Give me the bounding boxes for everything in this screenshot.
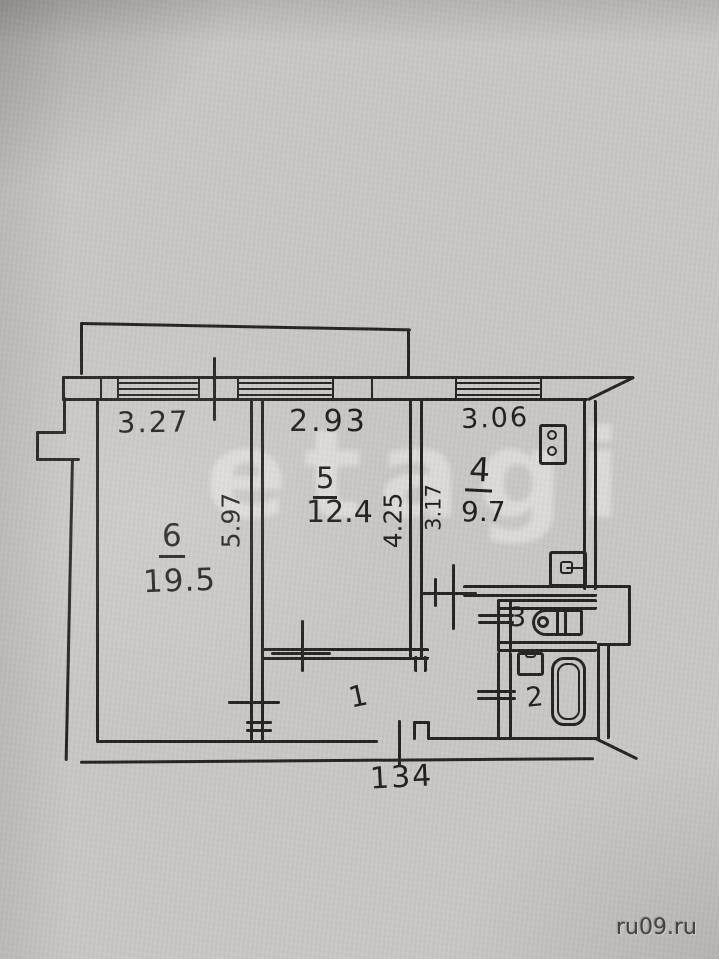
- wall-niche-left: [36, 431, 39, 461]
- wall-niche-top: [36, 431, 66, 434]
- kitchen-door-tick-1: [452, 564, 455, 630]
- window-hatch-line: [117, 388, 198, 390]
- kitchen-sink-line: [566, 567, 584, 569]
- entrance-jamb-top: [413, 721, 430, 724]
- left-wall-outer: [65, 458, 74, 761]
- kitchen-door-tick-3: [421, 592, 477, 595]
- bathroom-west-wall: [497, 652, 512, 739]
- tap-icon: [525, 649, 536, 658]
- bathroom-door-tick-2: [477, 697, 516, 700]
- room-kitchen-area: 9.7: [461, 498, 506, 526]
- east-wall-lower: [597, 645, 610, 739]
- bottom-wall-inner-right: [428, 737, 599, 740]
- balcony-left-line: [80, 324, 83, 375]
- window-wall-bottom-line: [62, 398, 588, 401]
- dim-depth-left: 5.97: [219, 490, 244, 552]
- window-hatch-line: [455, 394, 540, 396]
- dim-entrance: 134: [369, 761, 434, 794]
- balcony-top-line: [80, 322, 411, 331]
- bedroom-door-tick-v: [301, 620, 304, 672]
- toilet-south-wall: [497, 641, 597, 652]
- window-dimension-tick: [213, 357, 216, 421]
- window-hatch-line: [237, 388, 332, 390]
- window-hatch-line: [117, 382, 198, 384]
- room-toilet-number: 3: [509, 604, 526, 631]
- room-kitchen-number: 4: [465, 452, 494, 492]
- bottom-wall-right-cap: [594, 737, 638, 761]
- dim-depth-small: 3.17: [424, 480, 445, 536]
- bathtub-inner-line: [557, 663, 580, 720]
- dim-window-right: 3.06: [461, 404, 530, 433]
- room-hallway-number: 1: [346, 680, 370, 712]
- wall-living-bedroom: [250, 400, 264, 743]
- stove-burner-icon: [547, 430, 557, 440]
- bottom-wall-outer: [80, 757, 594, 764]
- window-divider: [198, 377, 200, 400]
- window-divider: [540, 377, 542, 400]
- left-wall-inner: [96, 400, 99, 742]
- window-divider: [371, 377, 373, 400]
- toilet-bowl-icon: [537, 616, 549, 628]
- living-door-tick-2: [246, 721, 272, 724]
- room-bathroom-number: 2: [525, 683, 545, 712]
- east-wall-ledge-top: [594, 585, 631, 588]
- living-door-tick-3: [246, 729, 272, 732]
- left-wall-upper: [63, 397, 66, 434]
- bottom-wall-inner-left: [96, 740, 378, 743]
- toilet-tank-icon: [556, 611, 559, 634]
- bedroom-wall-stub: [414, 656, 427, 672]
- dim-depth-mid: 4.25: [381, 490, 406, 552]
- window-hatch-line: [455, 388, 540, 390]
- dim-window-left: 3.27: [117, 407, 190, 437]
- window-hatch-line: [117, 394, 198, 396]
- room-bedroom-number: 5: [313, 464, 337, 499]
- dim-window-mid: 2.93: [289, 407, 368, 437]
- toilet-tank-icon: [564, 611, 567, 634]
- window-hatch-line: [237, 394, 332, 396]
- room-living-area: 19.5: [142, 565, 216, 599]
- window-divider: [100, 377, 102, 400]
- watermark-ru09: ru09.ru: [616, 915, 697, 940]
- window-hatch-line: [455, 382, 540, 384]
- window-wall-top-line: [62, 376, 634, 379]
- living-door-tick-1: [228, 701, 280, 704]
- room-living-number: 6: [159, 521, 185, 558]
- room-bedroom-area: 12.4: [306, 498, 373, 528]
- stove-burner-icon: [547, 446, 557, 456]
- window-wall-right-cap: [587, 376, 635, 401]
- bathroom-door-tick-1: [477, 690, 516, 693]
- balcony-right-line: [407, 329, 410, 378]
- floor-plan-photo: etagi: [0, 0, 719, 959]
- window-hatch-line: [237, 382, 332, 384]
- window-divider: [332, 377, 334, 400]
- bedroom-door-tick-h: [271, 652, 331, 655]
- east-wall-ledge-right: [628, 585, 631, 646]
